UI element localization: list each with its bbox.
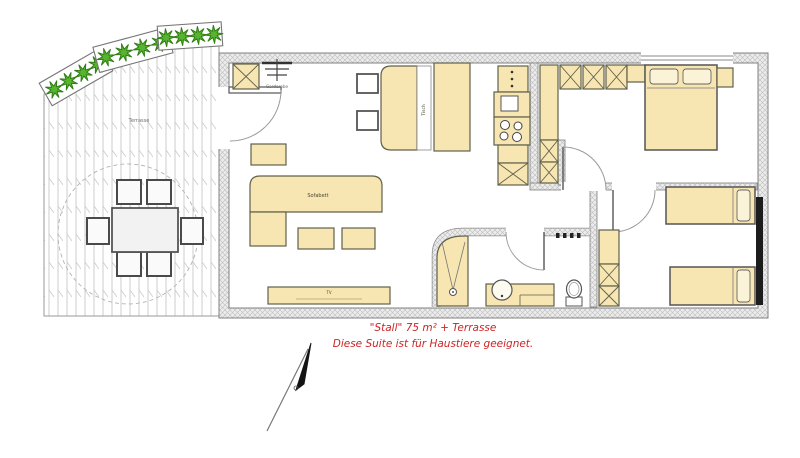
entrance-door <box>229 87 281 141</box>
closet-column <box>540 65 558 140</box>
coat-rack-label: Garderobe <box>266 84 289 89</box>
interior-wall <box>530 63 538 185</box>
closet-column <box>599 230 619 264</box>
terrace-label: Terrasse <box>128 118 150 124</box>
window <box>641 52 733 64</box>
bedroom-1 <box>540 65 733 183</box>
single-bed <box>670 267 755 305</box>
bathroom <box>437 233 582 306</box>
outdoor-chair <box>181 218 203 244</box>
tall-cabinet <box>498 66 528 92</box>
floor-plan-page: Terrasse <box>0 0 800 458</box>
toilet <box>566 280 582 306</box>
closet <box>540 162 558 183</box>
closet <box>599 286 619 306</box>
sofa-label: Sofabett <box>307 193 328 199</box>
bathroom-door <box>506 229 544 271</box>
dining-chair <box>357 111 378 130</box>
terrace: Terrasse <box>39 22 224 316</box>
kitchen <box>494 66 530 185</box>
outdoor-chair <box>117 252 141 276</box>
kitchen-sink <box>494 92 530 117</box>
pillow <box>650 69 678 84</box>
planter-box <box>156 22 224 51</box>
door-swing-arc <box>506 232 544 270</box>
washing-machine <box>233 64 259 89</box>
interior-wall <box>590 190 597 307</box>
bedroom-2 <box>599 187 755 306</box>
outdoor-chair <box>87 218 109 244</box>
pillow <box>737 190 750 221</box>
tv-label: TV <box>325 290 331 295</box>
shower <box>437 236 468 306</box>
coffee-table <box>298 228 334 249</box>
outdoor-chair <box>147 252 171 276</box>
north-arrow-icon <box>267 343 311 431</box>
bedroom2-door-opening <box>612 182 656 191</box>
kitchen-counter <box>498 145 528 163</box>
vanity <box>486 280 554 306</box>
double-bed <box>645 65 717 150</box>
outdoor-table <box>112 208 178 252</box>
shelf <box>627 65 645 82</box>
wardrobe <box>606 65 627 89</box>
entrance-opening <box>218 87 230 149</box>
outdoor-chair <box>117 180 141 204</box>
coffee-table <box>342 228 375 249</box>
closet <box>599 264 619 286</box>
coat-rack-icon <box>262 59 292 81</box>
caption-line-1: "Stall" 75 m² + Terrasse <box>370 322 497 334</box>
living-area: Garderobe Sofabett TV Tisch <box>233 59 530 304</box>
caption: "Stall" 75 m² + Terrasse Diese Suite ist… <box>333 322 534 350</box>
window-glass-band <box>756 197 763 305</box>
outdoor-chair <box>147 180 171 204</box>
caption-line-2: Diese Suite ist für Haustiere geeignet. <box>333 338 534 350</box>
bedroom1-door-opening <box>561 182 606 191</box>
pillow <box>683 69 711 84</box>
bedroom2-door <box>613 190 655 232</box>
door-swing-arc <box>613 190 655 232</box>
dining-chair <box>357 74 378 93</box>
kitchen-cabinet <box>498 163 528 185</box>
dining-table-label: Tisch <box>421 104 427 117</box>
dining-corner: Tisch <box>357 63 470 151</box>
single-bed <box>666 187 755 224</box>
stove <box>494 117 530 145</box>
nightstand <box>717 68 733 87</box>
dining-table <box>381 66 417 150</box>
wardrobe <box>583 65 604 89</box>
closet <box>540 140 558 162</box>
door-opening <box>506 229 544 236</box>
floor-plan: Terrasse <box>0 0 800 458</box>
pillow <box>737 270 750 302</box>
wardrobe <box>560 65 581 89</box>
tv-sideboard: TV <box>268 287 390 304</box>
cabinet <box>251 144 286 165</box>
door-swing-arc <box>230 90 281 141</box>
dining-bench <box>434 63 470 151</box>
